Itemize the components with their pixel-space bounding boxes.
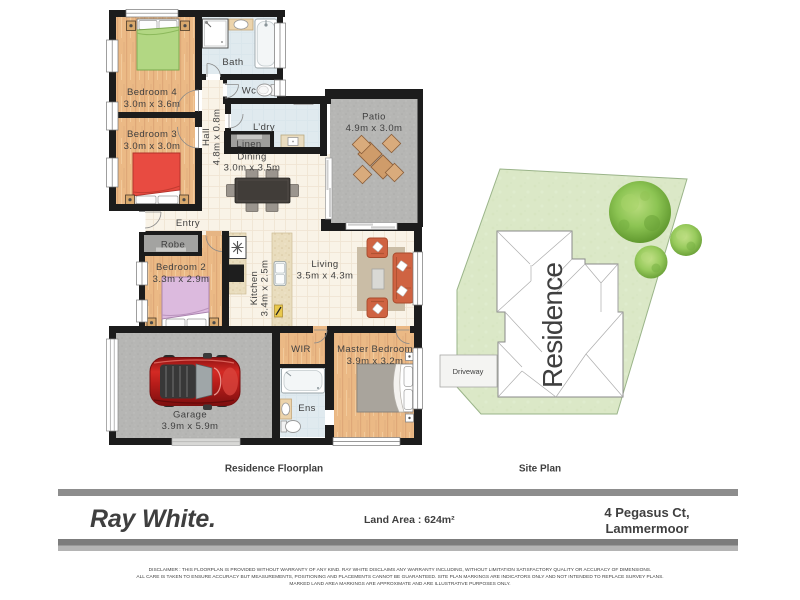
svg-text:3.4m x 2.5m: 3.4m x 2.5m [260,260,271,317]
svg-text:Garage: Garage [173,410,207,421]
svg-text:Entry: Entry [176,218,200,229]
svg-text:3.0m x 3.0m: 3.0m x 3.0m [124,141,181,152]
svg-text:Ens: Ens [298,403,316,414]
svg-text:Living: Living [311,259,338,270]
svg-text:Residence: Residence [537,263,568,388]
svg-text:4.8m x 0.8m: 4.8m x 0.8m [212,109,223,166]
svg-text:Bath: Bath [222,57,243,68]
svg-text:Bedroom 2: Bedroom 2 [156,262,206,273]
svg-text:3.0m x 3.5m: 3.0m x 3.5m [224,163,281,174]
svg-text:Land Area : 624m²: Land Area : 624m² [364,514,455,526]
svg-text:MARKED LAND AREA MARKINGS ARE: MARKED LAND AREA MARKINGS ARE APPROXIMAT… [289,581,510,587]
svg-text:4.9m x 3.0m: 4.9m x 3.0m [346,123,403,134]
svg-text:Bedroom 4: Bedroom 4 [127,87,177,98]
svg-text:3.9m x 3.2m: 3.9m x 3.2m [347,356,404,367]
svg-text:Dining: Dining [237,152,266,163]
svg-text:Hall: Hall [201,128,212,146]
svg-text:Bedroom 3: Bedroom 3 [127,129,177,140]
svg-text:3.5m x 4.3m: 3.5m x 4.3m [297,271,354,282]
svg-text:Robe: Robe [161,240,185,251]
svg-text:Driveway: Driveway [453,367,484,376]
svg-text:Kitchen: Kitchen [249,271,260,306]
svg-text:Lammermoor: Lammermoor [605,521,688,536]
svg-text:3.3m x 2.9m: 3.3m x 2.9m [153,274,210,285]
svg-text:Ray White.: Ray White. [90,505,216,533]
svg-text:3.9m x 5.9m: 3.9m x 5.9m [162,421,219,432]
svg-text:Wc: Wc [242,86,257,97]
svg-text:ALL CARE IS TAKEN TO ENSURE AC: ALL CARE IS TAKEN TO ENSURE ACCURACY BUT… [136,574,663,580]
svg-text:3.0m x 3.6m: 3.0m x 3.6m [124,99,181,110]
svg-text:Site Plan: Site Plan [519,464,561,475]
svg-text:WIR: WIR [291,344,311,355]
svg-text:DISCLAIMER : THIS FLOORPLAN: DISCLAIMER : THIS FLOORPLAN IS PROVIDED … [149,567,652,573]
svg-text:Master Bedroom: Master Bedroom [337,344,413,355]
svg-text:Linen: Linen [236,139,261,150]
svg-text:Residence Floorplan: Residence Floorplan [225,464,323,475]
svg-text:L’dry: L’dry [253,122,275,133]
svg-text:4 Pegasus Ct,: 4 Pegasus Ct, [604,505,689,520]
svg-text:Patio: Patio [362,112,386,123]
